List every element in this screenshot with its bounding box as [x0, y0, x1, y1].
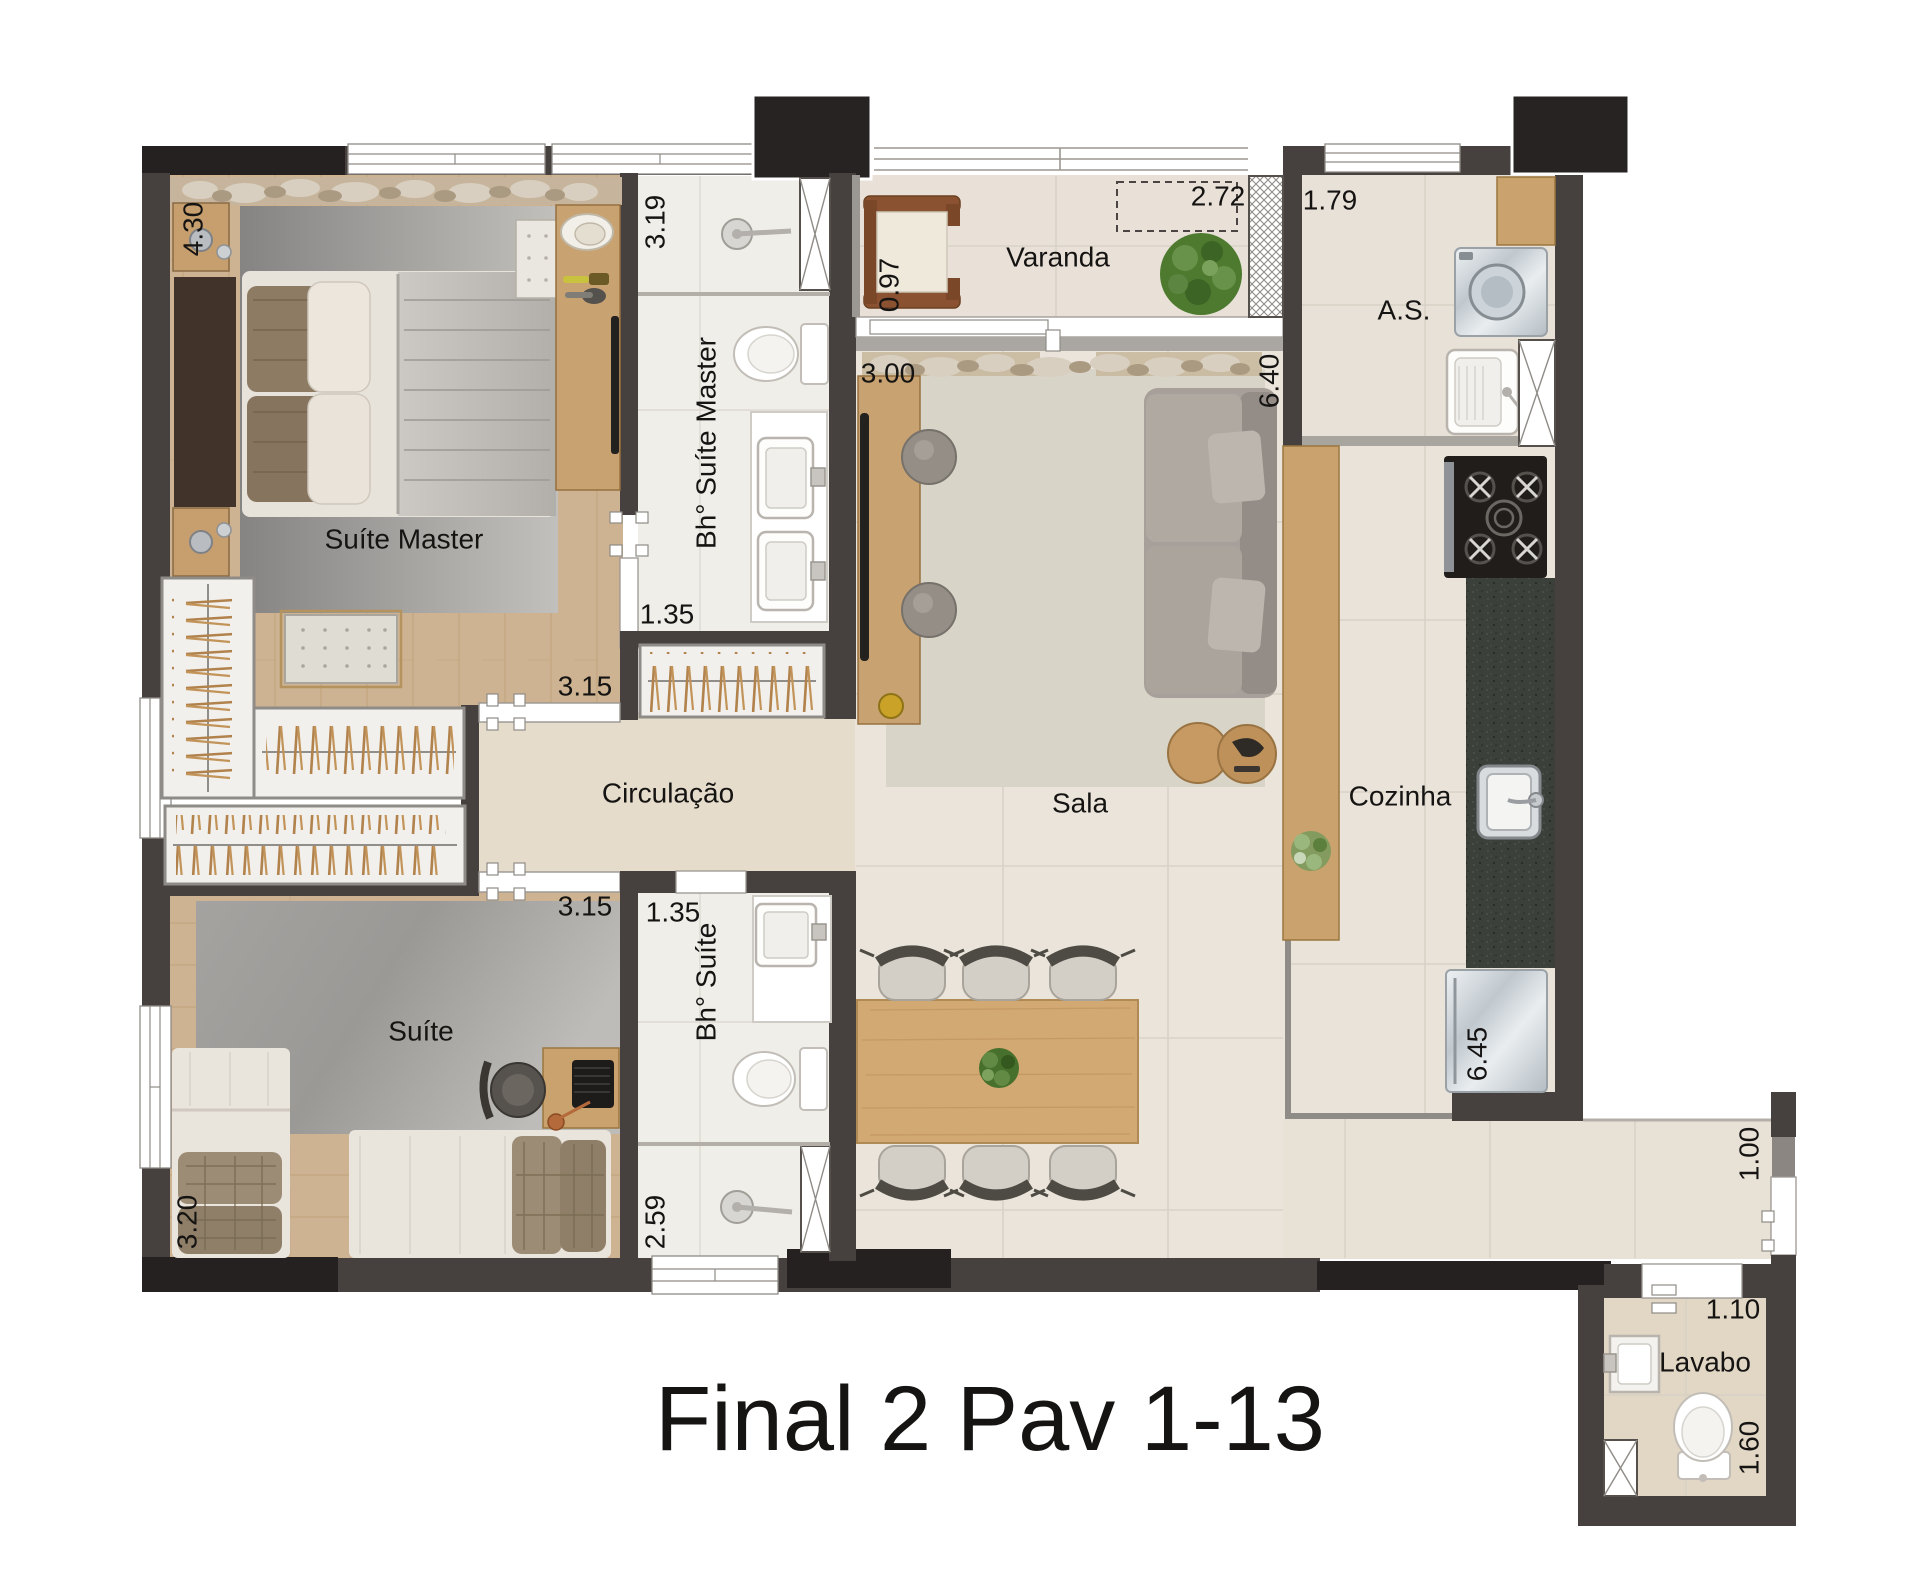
svg-text:Lavabo: Lavabo: [1659, 1347, 1751, 1378]
svg-text:6.40: 6.40: [1254, 354, 1285, 409]
svg-text:Varanda: Varanda: [1006, 242, 1110, 273]
svg-text:3.00: 3.00: [861, 358, 916, 389]
svg-text:1.00: 1.00: [1734, 1127, 1765, 1182]
svg-text:3.19: 3.19: [640, 195, 671, 250]
svg-text:Bh° Suíte Master: Bh° Suíte Master: [691, 337, 722, 549]
svg-text:Suíte Master: Suíte Master: [325, 524, 484, 555]
svg-text:Final 2 Pav 1-13: Final 2 Pav 1-13: [655, 1368, 1325, 1470]
svg-text:3.20: 3.20: [172, 1195, 203, 1250]
svg-text:4.30: 4.30: [178, 202, 209, 257]
svg-text:3.15: 3.15: [558, 671, 613, 702]
svg-text:1.60: 1.60: [1734, 1421, 1765, 1476]
svg-text:2.59: 2.59: [640, 1195, 671, 1250]
svg-text:Sala: Sala: [1052, 788, 1108, 819]
svg-text:1.79: 1.79: [1303, 185, 1358, 216]
svg-text:2.72: 2.72: [1191, 181, 1246, 212]
svg-text:Cozinha: Cozinha: [1349, 781, 1452, 812]
svg-text:Circulação: Circulação: [602, 778, 734, 809]
svg-text:Bh° Suíte: Bh° Suíte: [691, 923, 722, 1042]
svg-text:1.35: 1.35: [640, 599, 695, 630]
svg-text:1.10: 1.10: [1706, 1294, 1761, 1325]
svg-text:Suíte: Suíte: [388, 1016, 453, 1047]
svg-text:A.S.: A.S.: [1378, 295, 1431, 326]
svg-text:3.15: 3.15: [558, 891, 613, 922]
svg-text:6.45: 6.45: [1462, 1027, 1493, 1082]
svg-text:0.97: 0.97: [874, 258, 905, 313]
